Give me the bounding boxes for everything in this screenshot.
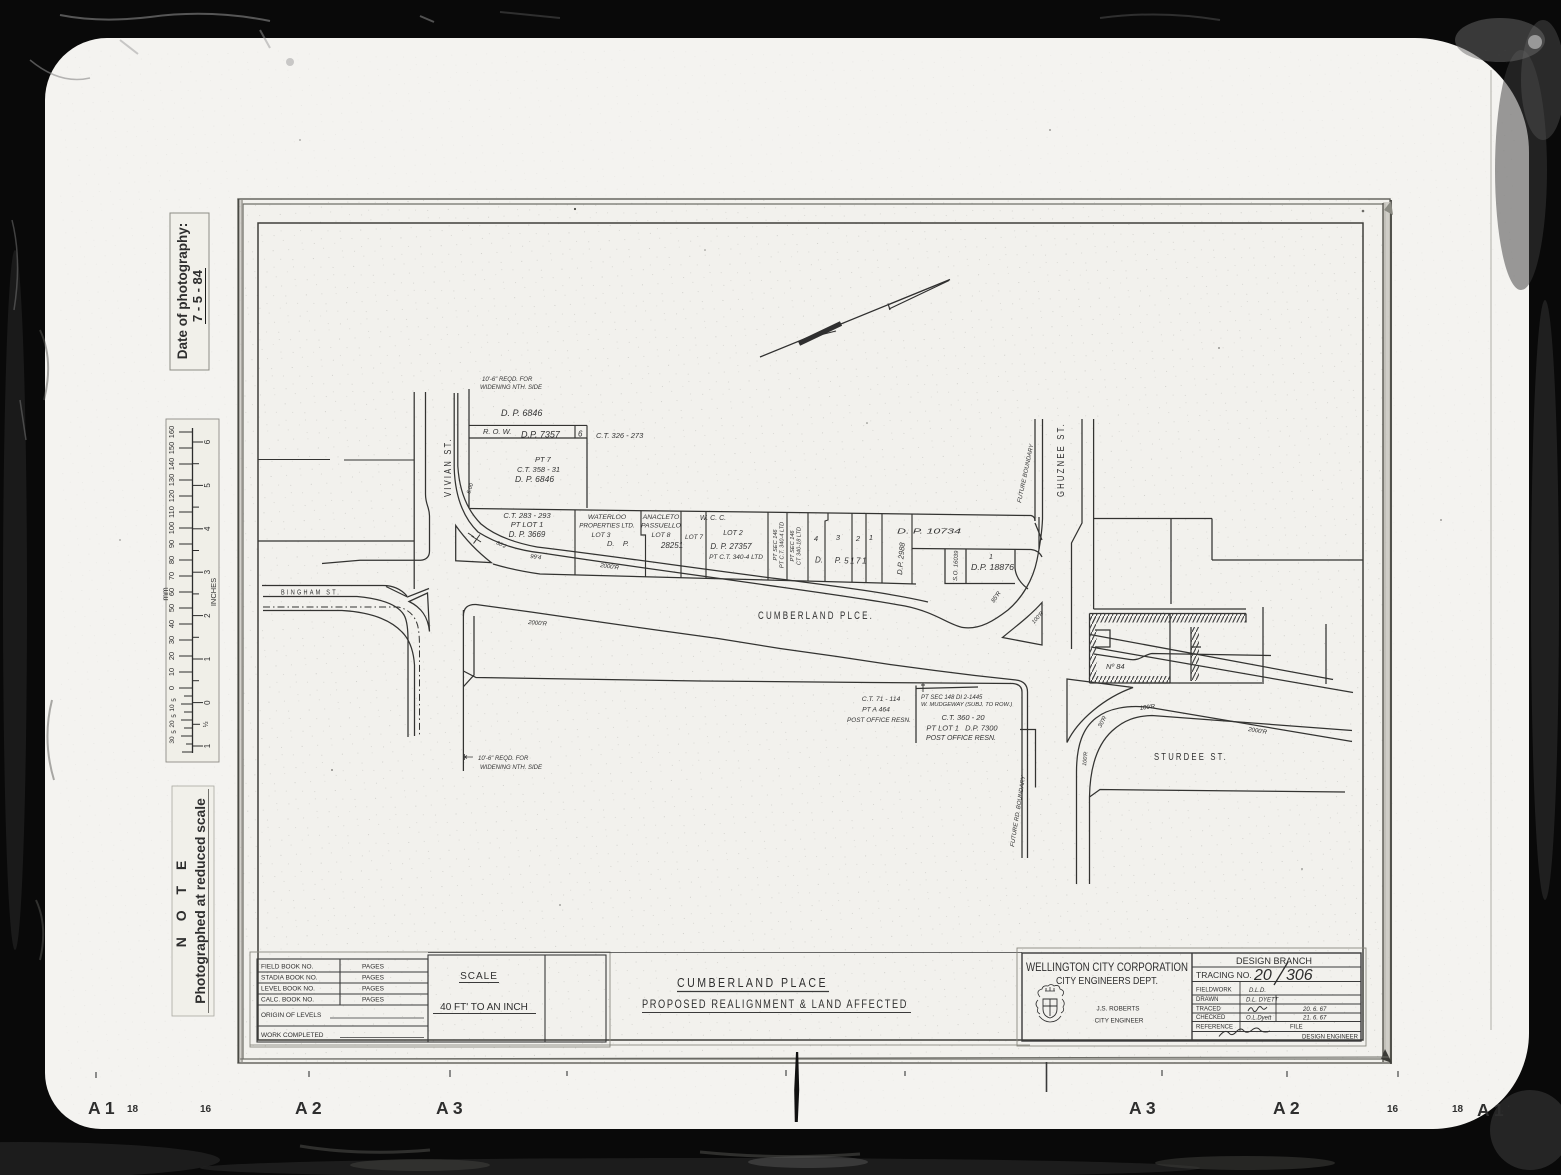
svg-text:P.: P.	[835, 556, 842, 565]
svg-text:10'-6" REQD. FOR: 10'-6" REQD. FOR	[478, 756, 529, 762]
svg-text:D. P.: D. P.	[607, 539, 629, 548]
svg-text:0: 0	[167, 686, 176, 690]
svg-text:TRACED: TRACED	[1196, 1007, 1221, 1013]
svg-text:7 - 5 - 84: 7 - 5 - 84	[190, 269, 205, 322]
svg-text:DESIGN BRANCH: DESIGN BRANCH	[1236, 956, 1312, 967]
svg-text:C.T. 360 - 20: C.T. 360 - 20	[941, 713, 985, 722]
svg-text:REFERENCE: REFERENCE	[1196, 1025, 1233, 1031]
svg-text:50: 50	[167, 604, 176, 612]
svg-text:CITY ENGINEER: CITY ENGINEER	[1095, 1018, 1144, 1025]
svg-text:6: 6	[578, 430, 583, 439]
svg-text:2: 2	[203, 613, 212, 618]
svg-text:20: 20	[1253, 967, 1272, 984]
svg-text:D.L.D.: D.L.D.	[1249, 988, 1266, 994]
svg-text:PT SEC 148 DI 2-1445: PT SEC 148 DI 2-1445	[921, 695, 983, 701]
svg-text:70: 70	[167, 572, 176, 580]
svg-text:CALC. BOOK NO.: CALC. BOOK NO.	[261, 997, 314, 1004]
svg-text:STADIA BOOK NO.: STADIA BOOK NO.	[261, 975, 318, 982]
svg-text:WIDENING NTH. SIDE: WIDENING NTH. SIDE	[480, 765, 543, 771]
svg-text:D.: D.	[815, 556, 823, 565]
svg-text:D.P. 7357: D.P. 7357	[521, 430, 561, 440]
svg-text:2: 2	[855, 534, 861, 543]
svg-text:140: 140	[167, 458, 176, 471]
svg-text:PROPOSED REALIGNMENT & LAND: PROPOSED REALIGNMENT & LAND AFFECTED	[642, 999, 908, 1011]
svg-text:DRAWN: DRAWN	[1196, 997, 1218, 1003]
svg-text:CUMBERLAND PLCE.: CUMBERLAND PLCE.	[758, 610, 874, 622]
svg-text:80: 80	[167, 556, 176, 564]
svg-text:18: 18	[127, 1104, 139, 1115]
svg-text:21. 6. 67: 21. 6. 67	[1302, 1016, 1327, 1022]
svg-text:D. P. 6846: D. P. 6846	[515, 474, 554, 484]
svg-text:6: 6	[203, 439, 212, 444]
svg-text:10: 10	[169, 704, 176, 712]
svg-text:CHECKED: CHECKED	[1196, 1015, 1226, 1021]
svg-text:D. P. 6846: D. P. 6846	[501, 408, 542, 418]
svg-text:PT SEC 146: PT SEC 146	[773, 529, 779, 561]
svg-text:C.T. 283 - 293: C.T. 283 - 293	[503, 511, 551, 520]
svg-text:C.T. 326 - 273: C.T. 326 - 273	[596, 431, 644, 440]
svg-text:D.L. DYETT: D.L. DYETT	[1246, 998, 1280, 1004]
svg-text:30: 30	[169, 736, 176, 744]
svg-text:POST OFFICE RESN.: POST OFFICE RESN.	[926, 735, 996, 742]
svg-text:PT C.T. 340-4 LTD: PT C.T. 340-4 LTD	[709, 554, 763, 561]
svg-text:CITY ENGINEERS DEPT.: CITY ENGINEERS DEPT.	[1056, 975, 1158, 987]
svg-text:WATERLOO: WATERLOO	[588, 514, 627, 521]
svg-text:C.T. 358 - 31: C.T. 358 - 31	[517, 465, 560, 474]
svg-text:STURDEE ST.: STURDEE ST.	[1154, 751, 1228, 763]
svg-text:D. P. 3669: D. P. 3669	[509, 530, 546, 539]
svg-text:D. P. 10734: D. P. 10734	[897, 527, 961, 536]
svg-text:WORK COMPLETED: WORK COMPLETED	[261, 1032, 324, 1039]
svg-text:TRACING NO.: TRACING NO.	[1196, 970, 1252, 980]
svg-text:306: 306	[1286, 967, 1313, 984]
svg-text:PT LOT 1: PT LOT 1	[511, 520, 544, 529]
svg-text:30: 30	[167, 636, 176, 644]
svg-text:90: 90	[167, 540, 176, 548]
svg-text:20: 20	[167, 652, 176, 660]
svg-text:100: 100	[167, 522, 176, 535]
svg-text:PAGES: PAGES	[362, 997, 385, 1004]
svg-text:A 1: A 1	[88, 1098, 115, 1118]
svg-text:FILE: FILE	[1290, 1025, 1303, 1031]
svg-text:PROPERTIES LTD.: PROPERTIES LTD.	[579, 523, 634, 530]
svg-text:16: 16	[200, 1104, 212, 1115]
svg-text:PAGES: PAGES	[362, 986, 385, 993]
svg-text:W. MUDGEWAY (SUBJ. TO ROW.): W. MUDGEWAY (SUBJ. TO ROW.)	[921, 702, 1012, 708]
svg-text:O.L.Dyett: O.L.Dyett	[1246, 1016, 1272, 1022]
svg-text:110: 110	[167, 506, 176, 518]
svg-text:LOT 7: LOT 7	[685, 534, 703, 541]
svg-text:S.O. 16039: S.O. 16039	[953, 550, 960, 581]
svg-text:130: 130	[167, 474, 176, 487]
svg-text:1: 1	[989, 554, 993, 561]
svg-text:ANACLETO: ANACLETO	[642, 514, 680, 521]
svg-text:ORIGIN OF LEVELS: ORIGIN OF LEVELS	[261, 1012, 322, 1019]
svg-text:FIELD BOOK NO.: FIELD BOOK NO.	[261, 964, 314, 971]
svg-text:C.T. 71 - 114: C.T. 71 - 114	[862, 696, 901, 703]
svg-text:VIVIAN ST.: VIVIAN ST.	[443, 437, 454, 497]
svg-text:PASSUELLO: PASSUELLO	[641, 523, 682, 530]
svg-text:1: 1	[869, 533, 873, 542]
svg-text:SCALE: SCALE	[460, 971, 498, 982]
svg-text:Photographed at reduced scale: Photographed at reduced scale	[193, 798, 208, 1004]
svg-text:CUMBERLAND PLACE: CUMBERLAND PLACE	[677, 975, 828, 990]
svg-text:1: 1	[203, 743, 212, 748]
svg-text:4: 4	[814, 534, 818, 543]
svg-text:PT LOT 1 D.P. 7300: PT LOT 1 D.P. 7300	[926, 724, 998, 733]
svg-text:Nº 84: Nº 84	[1106, 662, 1125, 671]
svg-text:FIELDWORK: FIELDWORK	[1196, 988, 1232, 994]
svg-text:A 3: A 3	[436, 1098, 463, 1118]
svg-text:28251: 28251	[660, 541, 683, 550]
svg-text:W. C. C.: W. C. C.	[700, 515, 726, 522]
svg-text:18: 18	[1452, 1104, 1464, 1115]
svg-text:LOT 3: LOT 3	[592, 532, 611, 539]
svg-text:A 2: A 2	[1273, 1098, 1300, 1118]
svg-text:4: 4	[203, 526, 212, 531]
svg-text:A 1: A 1	[1477, 1100, 1504, 1120]
svg-text:3: 3	[203, 569, 212, 574]
svg-text:PT C.T. 340-4 LTD: PT C.T. 340-4 LTD	[780, 522, 786, 568]
svg-text:N O T E: N O T E	[173, 855, 189, 948]
svg-text:WELLINGTON CITY CORPORATION: WELLINGTON CITY CORPORATION	[1026, 960, 1188, 974]
svg-text:40 FT' TO AN INCH: 40 FT' TO AN INCH	[440, 1002, 528, 1013]
svg-text:CT 340-18 LTD: CT 340-18 LTD	[797, 527, 803, 565]
svg-text:120: 120	[167, 490, 176, 503]
svg-text:LOT 8: LOT 8	[652, 532, 671, 539]
svg-text:½: ½	[202, 721, 210, 727]
svg-text:PAGES: PAGES	[362, 975, 385, 982]
svg-text:LOT 2: LOT 2	[723, 530, 743, 537]
svg-text:PAGES: PAGES	[362, 964, 385, 971]
svg-text:mm: mm	[161, 587, 170, 601]
svg-text:PT SEC 146: PT SEC 146	[790, 530, 796, 562]
svg-text:A 2: A 2	[295, 1098, 322, 1118]
svg-text:Date of photography:: Date of photography:	[175, 223, 190, 360]
svg-text:INCHES: INCHES	[209, 578, 218, 606]
svg-text:PT 7: PT 7	[535, 455, 552, 464]
svg-text:D.P. 18876: D.P. 18876	[971, 563, 1015, 572]
svg-text:0: 0	[203, 700, 212, 705]
svg-text:GHUZNEE ST.: GHUZNEE ST.	[1055, 422, 1067, 497]
svg-text:16: 16	[1387, 1104, 1399, 1115]
svg-text:40: 40	[167, 620, 176, 628]
svg-text:R. O. W.: R. O. W.	[483, 427, 511, 436]
svg-text:BINGHAM ST.: BINGHAM ST.	[281, 588, 341, 597]
svg-text:1: 1	[203, 656, 212, 661]
svg-text:10'-6" REQD. FOR: 10'-6" REQD. FOR	[482, 377, 533, 383]
svg-text:10: 10	[167, 668, 176, 676]
svg-text:D. P. 27357: D. P. 27357	[710, 542, 752, 551]
svg-text:LEVEL BOOK NO.: LEVEL BOOK NO.	[261, 986, 315, 993]
svg-text:20: 20	[169, 720, 176, 728]
svg-text:160: 160	[167, 426, 176, 439]
svg-text:J.S. ROBERTS: J.S. ROBERTS	[1097, 1006, 1140, 1013]
svg-text:A 3: A 3	[1129, 1098, 1156, 1118]
svg-text:5: 5	[203, 483, 212, 488]
svg-text:POST OFFICE RESN.: POST OFFICE RESN.	[847, 717, 911, 724]
svg-text:DESIGN ENGINEER: DESIGN ENGINEER	[1302, 1035, 1359, 1041]
svg-text:PT A 464: PT A 464	[862, 707, 890, 714]
svg-text:150: 150	[167, 442, 176, 455]
svg-text:WIDENING NTH. SIDE: WIDENING NTH. SIDE	[480, 385, 543, 391]
svg-text:5171: 5171	[844, 557, 868, 566]
svg-text:20. 6. 67: 20. 6. 67	[1302, 1007, 1327, 1013]
